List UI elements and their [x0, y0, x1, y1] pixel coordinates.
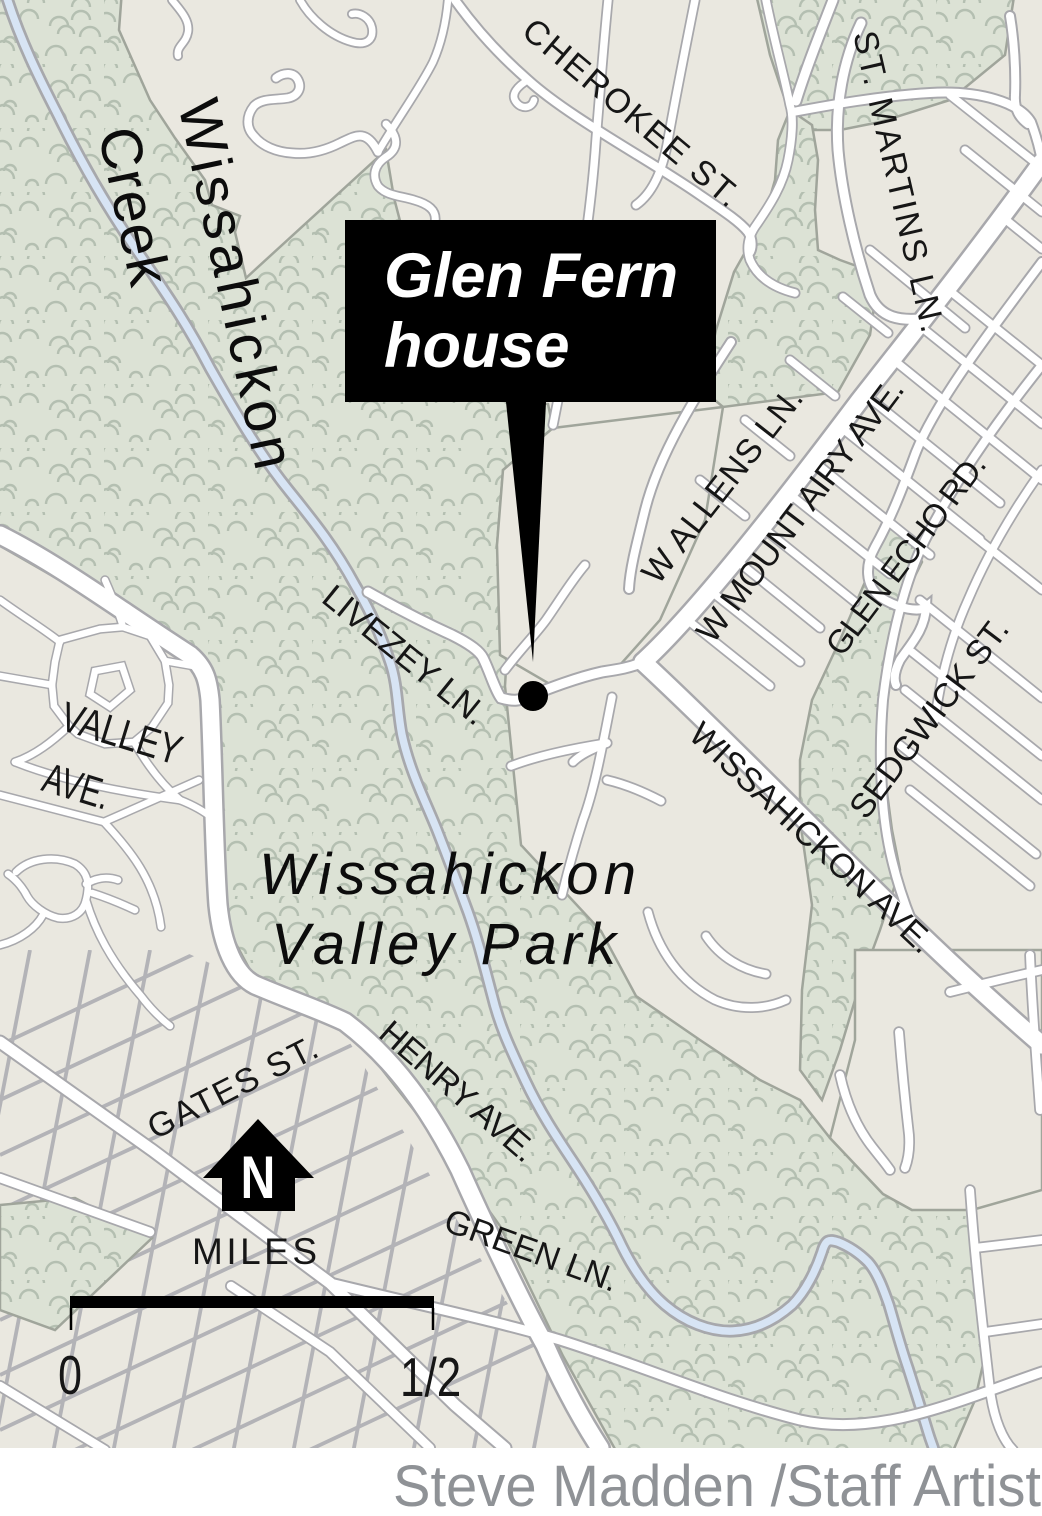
- svg-text:Steve Madden /Staff Artist: Steve Madden /Staff Artist: [393, 1454, 1041, 1516]
- svg-text:Glen Fern: Glen Fern: [384, 241, 678, 311]
- svg-text:1/2: 1/2: [400, 1346, 461, 1408]
- svg-text:Valley Park: Valley Park: [271, 912, 619, 977]
- svg-text:house: house: [384, 311, 570, 381]
- svg-text:0: 0: [58, 1345, 82, 1406]
- svg-text:MILES: MILES: [192, 1231, 317, 1272]
- svg-text:N: N: [241, 1144, 276, 1211]
